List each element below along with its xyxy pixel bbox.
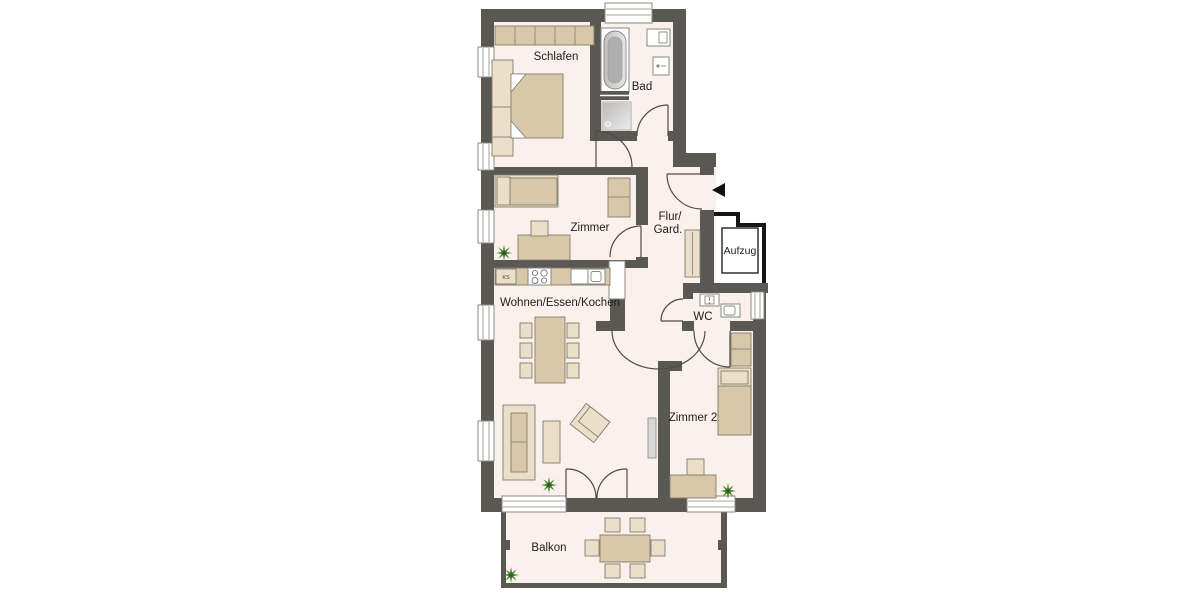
wc-sink xyxy=(721,304,740,317)
stove xyxy=(528,268,551,285)
wall-entry-connector xyxy=(673,153,716,167)
wall-entry-top xyxy=(700,167,714,175)
sofa xyxy=(503,405,535,480)
bad-sink xyxy=(653,57,669,75)
toilet xyxy=(700,294,719,306)
elevator: Aufzug xyxy=(722,228,758,273)
garderobe-cabinet xyxy=(685,230,700,277)
label-zimmer: Zimmer xyxy=(571,222,610,234)
wall-wc-bottom xyxy=(682,321,694,331)
floor-plan: Aufzug xyxy=(0,0,1200,600)
plant-icon xyxy=(541,477,557,493)
radiator xyxy=(648,418,656,458)
label-flur-line1: Flur/ xyxy=(659,211,683,223)
wall-band-right xyxy=(730,321,766,331)
wall-band-left-stub xyxy=(596,321,612,331)
shower xyxy=(602,102,631,130)
window-wohnen-upper xyxy=(478,305,494,340)
wall-entry-bottom xyxy=(700,210,714,285)
plant-icon xyxy=(720,483,736,499)
label-flur-line2: Gard. xyxy=(654,224,683,236)
dining-table xyxy=(535,317,565,383)
balcony-anchor-right xyxy=(718,540,727,550)
wall-zimmer-right-top xyxy=(636,167,648,225)
label-zimmer2: Zimmer 2 xyxy=(669,412,718,424)
wall-top xyxy=(481,9,686,22)
pass-through-kitchen xyxy=(609,261,625,299)
wardrobe-zimmer xyxy=(608,178,630,217)
plant-icon xyxy=(496,245,512,261)
bed-zimmer2 xyxy=(718,368,751,435)
label-schlafen: Schlafen xyxy=(534,51,579,63)
window-balcony-left xyxy=(502,496,566,512)
label-balkon: Balkon xyxy=(531,542,566,554)
wall-bad-bottom-right xyxy=(668,131,686,141)
balcony-anchor-left xyxy=(501,540,510,550)
bathtub xyxy=(601,28,629,92)
label-wc: WC xyxy=(693,311,712,323)
washing-machine xyxy=(647,29,670,46)
window-wc xyxy=(751,292,764,319)
label-ks: KS xyxy=(502,275,510,281)
fridge-ks: KS xyxy=(496,269,516,284)
window-wohnen-lower xyxy=(478,421,494,461)
balcony-table xyxy=(600,535,650,562)
label-aufzug: Aufzug xyxy=(724,245,757,257)
window-zimmer xyxy=(478,210,494,243)
half-wall-tub xyxy=(600,91,629,100)
room-flur xyxy=(685,230,700,277)
bed-zimmer xyxy=(495,175,558,207)
kitchen-sink xyxy=(571,269,605,284)
wall-wc-west-stub xyxy=(683,293,693,299)
coffee-table xyxy=(543,421,560,463)
balcony-wall-bottom xyxy=(501,583,727,588)
wall-living-zimmer2 xyxy=(658,371,670,498)
wardrobe-schlafen xyxy=(495,26,594,45)
window-bad-top xyxy=(605,3,652,23)
cabinet-zimmer2 xyxy=(731,333,751,366)
plant-icon xyxy=(503,567,519,583)
label-wohnen: Wohnen/Essen/Kochen xyxy=(500,297,620,309)
label-bad: Bad xyxy=(632,81,652,93)
wall-schlafen-bottom xyxy=(481,167,636,175)
